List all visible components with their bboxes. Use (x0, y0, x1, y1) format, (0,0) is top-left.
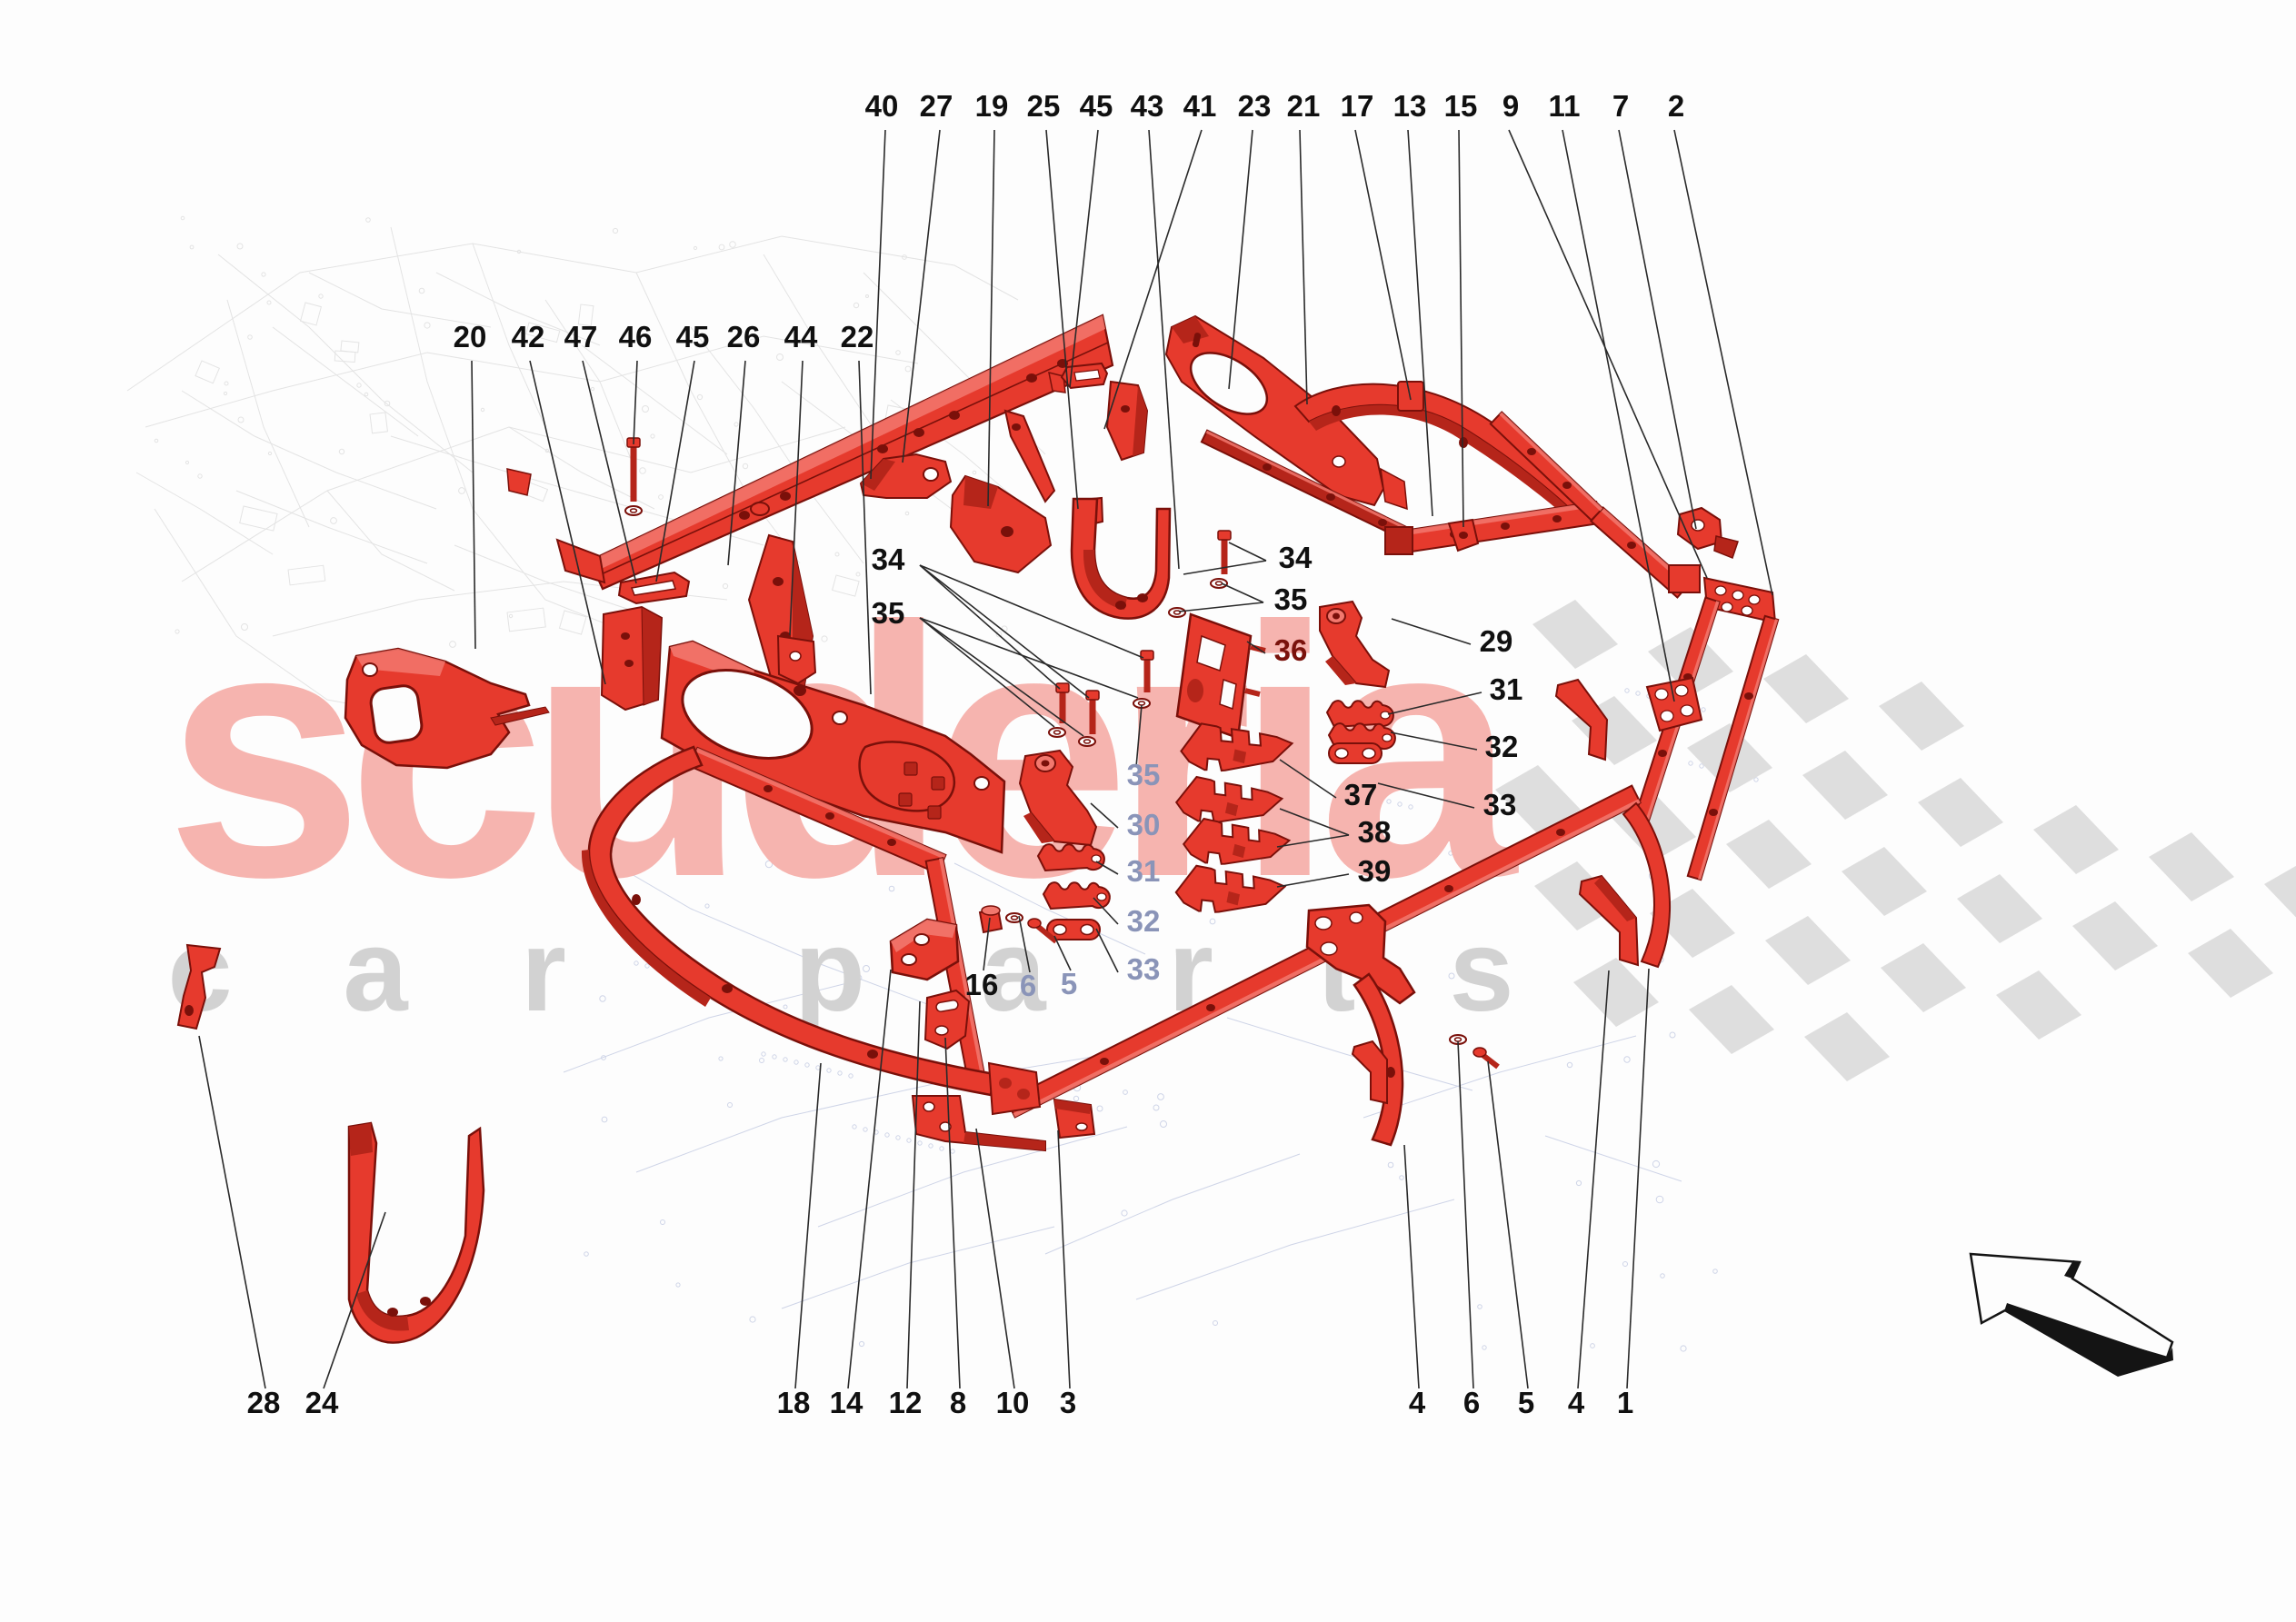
svg-text:9: 9 (1502, 89, 1519, 123)
svg-text:a: a (343, 906, 408, 1036)
svg-text:14: 14 (830, 1386, 863, 1419)
svg-text:3: 3 (1060, 1386, 1076, 1419)
svg-text:6: 6 (1463, 1386, 1480, 1419)
svg-text:38: 38 (1358, 815, 1392, 849)
svg-text:10: 10 (996, 1386, 1030, 1419)
svg-text:12: 12 (889, 1386, 923, 1419)
svg-text:28: 28 (247, 1386, 281, 1419)
svg-text:r: r (521, 906, 566, 1036)
svg-text:16: 16 (965, 968, 999, 1001)
svg-text:35: 35 (1127, 758, 1161, 791)
svg-text:42: 42 (512, 320, 545, 353)
svg-text:35: 35 (1274, 582, 1308, 616)
svg-text:31: 31 (1127, 854, 1161, 888)
svg-text:15: 15 (1444, 89, 1478, 123)
svg-text:43: 43 (1131, 89, 1164, 123)
svg-text:p: p (794, 906, 865, 1036)
svg-text:45: 45 (676, 320, 710, 353)
svg-text:8: 8 (950, 1386, 966, 1419)
svg-text:25: 25 (1027, 89, 1061, 123)
svg-text:32: 32 (1485, 730, 1519, 763)
svg-text:45: 45 (1080, 89, 1113, 123)
svg-text:39: 39 (1358, 854, 1392, 888)
svg-text:33: 33 (1483, 788, 1517, 821)
svg-text:37: 37 (1344, 778, 1378, 811)
svg-text:33: 33 (1127, 952, 1161, 986)
svg-text:41: 41 (1183, 89, 1217, 123)
svg-text:2: 2 (1668, 89, 1684, 123)
svg-text:18: 18 (777, 1386, 811, 1419)
svg-text:40: 40 (865, 89, 899, 123)
svg-text:35: 35 (872, 596, 905, 630)
svg-text:19: 19 (975, 89, 1009, 123)
svg-text:23: 23 (1238, 89, 1272, 123)
svg-text:1: 1 (1617, 1386, 1633, 1419)
svg-text:44: 44 (784, 320, 818, 353)
svg-text:s: s (1449, 906, 1513, 1036)
svg-text:34: 34 (1279, 541, 1313, 574)
svg-text:34: 34 (872, 542, 905, 576)
svg-text:4: 4 (1409, 1386, 1426, 1419)
svg-text:13: 13 (1393, 89, 1427, 123)
svg-text:30: 30 (1127, 808, 1161, 841)
svg-text:5: 5 (1518, 1386, 1534, 1419)
svg-text:6: 6 (1020, 969, 1036, 1002)
svg-text:17: 17 (1341, 89, 1374, 123)
svg-text:24: 24 (305, 1386, 339, 1419)
svg-text:11: 11 (1549, 89, 1581, 123)
svg-text:36: 36 (1274, 633, 1308, 667)
svg-text:27: 27 (920, 89, 953, 123)
svg-text:31: 31 (1490, 672, 1523, 706)
svg-text:46: 46 (619, 320, 653, 353)
svg-text:29: 29 (1480, 624, 1513, 658)
svg-text:4: 4 (1568, 1386, 1585, 1419)
svg-text:7: 7 (1612, 89, 1629, 123)
svg-text:32: 32 (1127, 904, 1161, 938)
svg-text:26: 26 (727, 320, 761, 353)
svg-text:22: 22 (841, 320, 874, 353)
svg-text:20: 20 (454, 320, 487, 353)
svg-text:5: 5 (1061, 967, 1077, 1000)
svg-text:47: 47 (564, 320, 598, 353)
svg-text:21: 21 (1287, 89, 1321, 123)
